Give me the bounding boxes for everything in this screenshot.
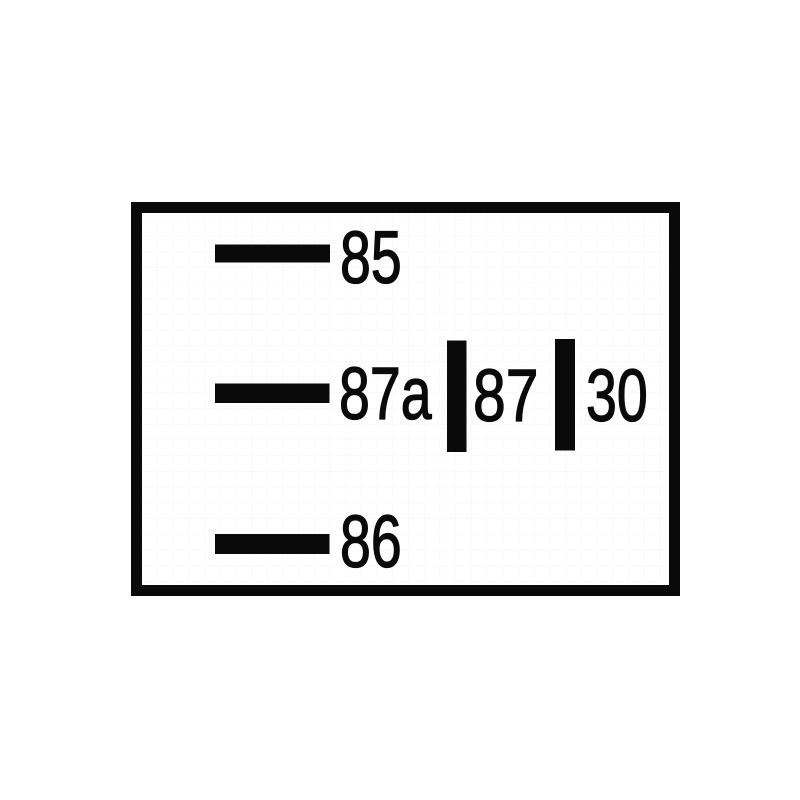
svg-text:87a: 87a — [339, 352, 432, 435]
svg-text:86: 86 — [340, 500, 402, 583]
svg-text:85: 85 — [340, 216, 402, 299]
svg-text:30: 30 — [586, 354, 648, 437]
svg-text:87: 87 — [473, 355, 538, 438]
